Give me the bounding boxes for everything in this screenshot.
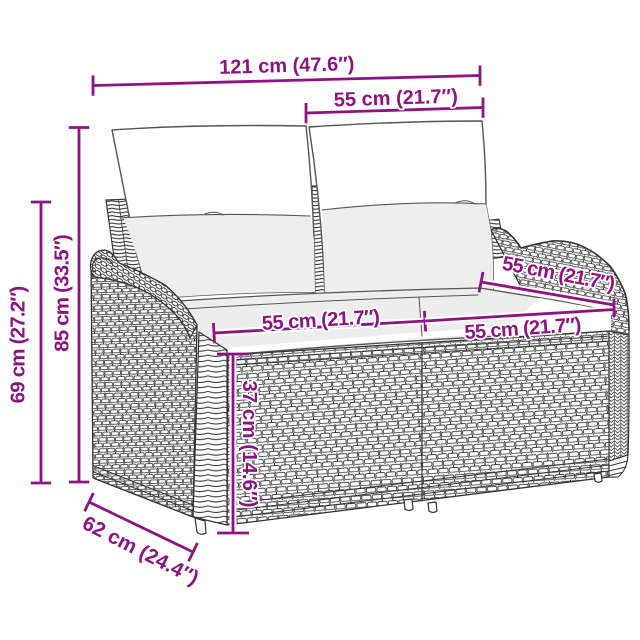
svg-text:85 cm (33.5″): 85 cm (33.5″): [51, 235, 74, 352]
svg-text:55 cm (21.7″): 55 cm (21.7″): [333, 86, 458, 112]
svg-text:69 cm (27.2″): 69 cm (27.2″): [7, 287, 30, 404]
svg-text:121 cm (47.6″): 121 cm (47.6″): [219, 53, 355, 79]
svg-text:37 cm (14.6″): 37 cm (14.6″): [238, 380, 261, 507]
